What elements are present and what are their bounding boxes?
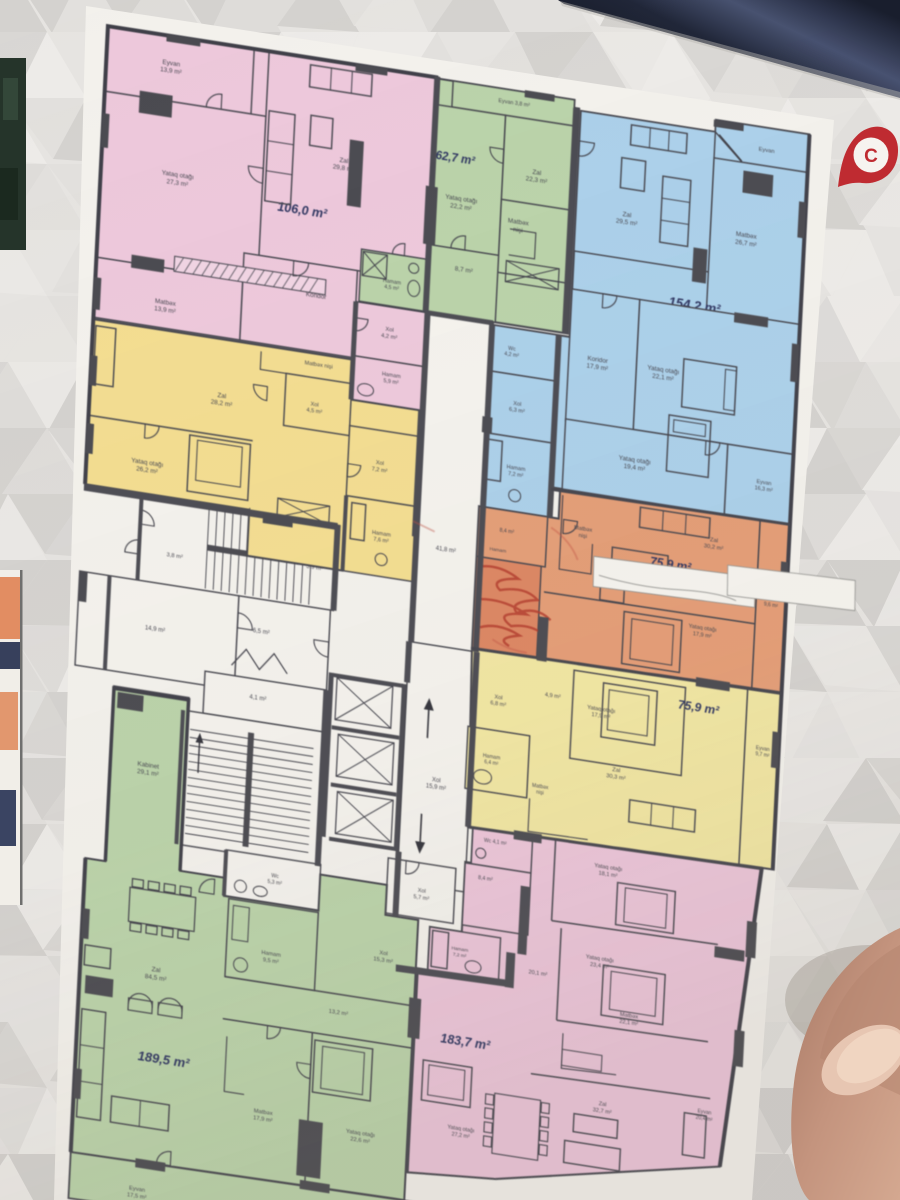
svg-text:C: C [864, 146, 878, 167]
